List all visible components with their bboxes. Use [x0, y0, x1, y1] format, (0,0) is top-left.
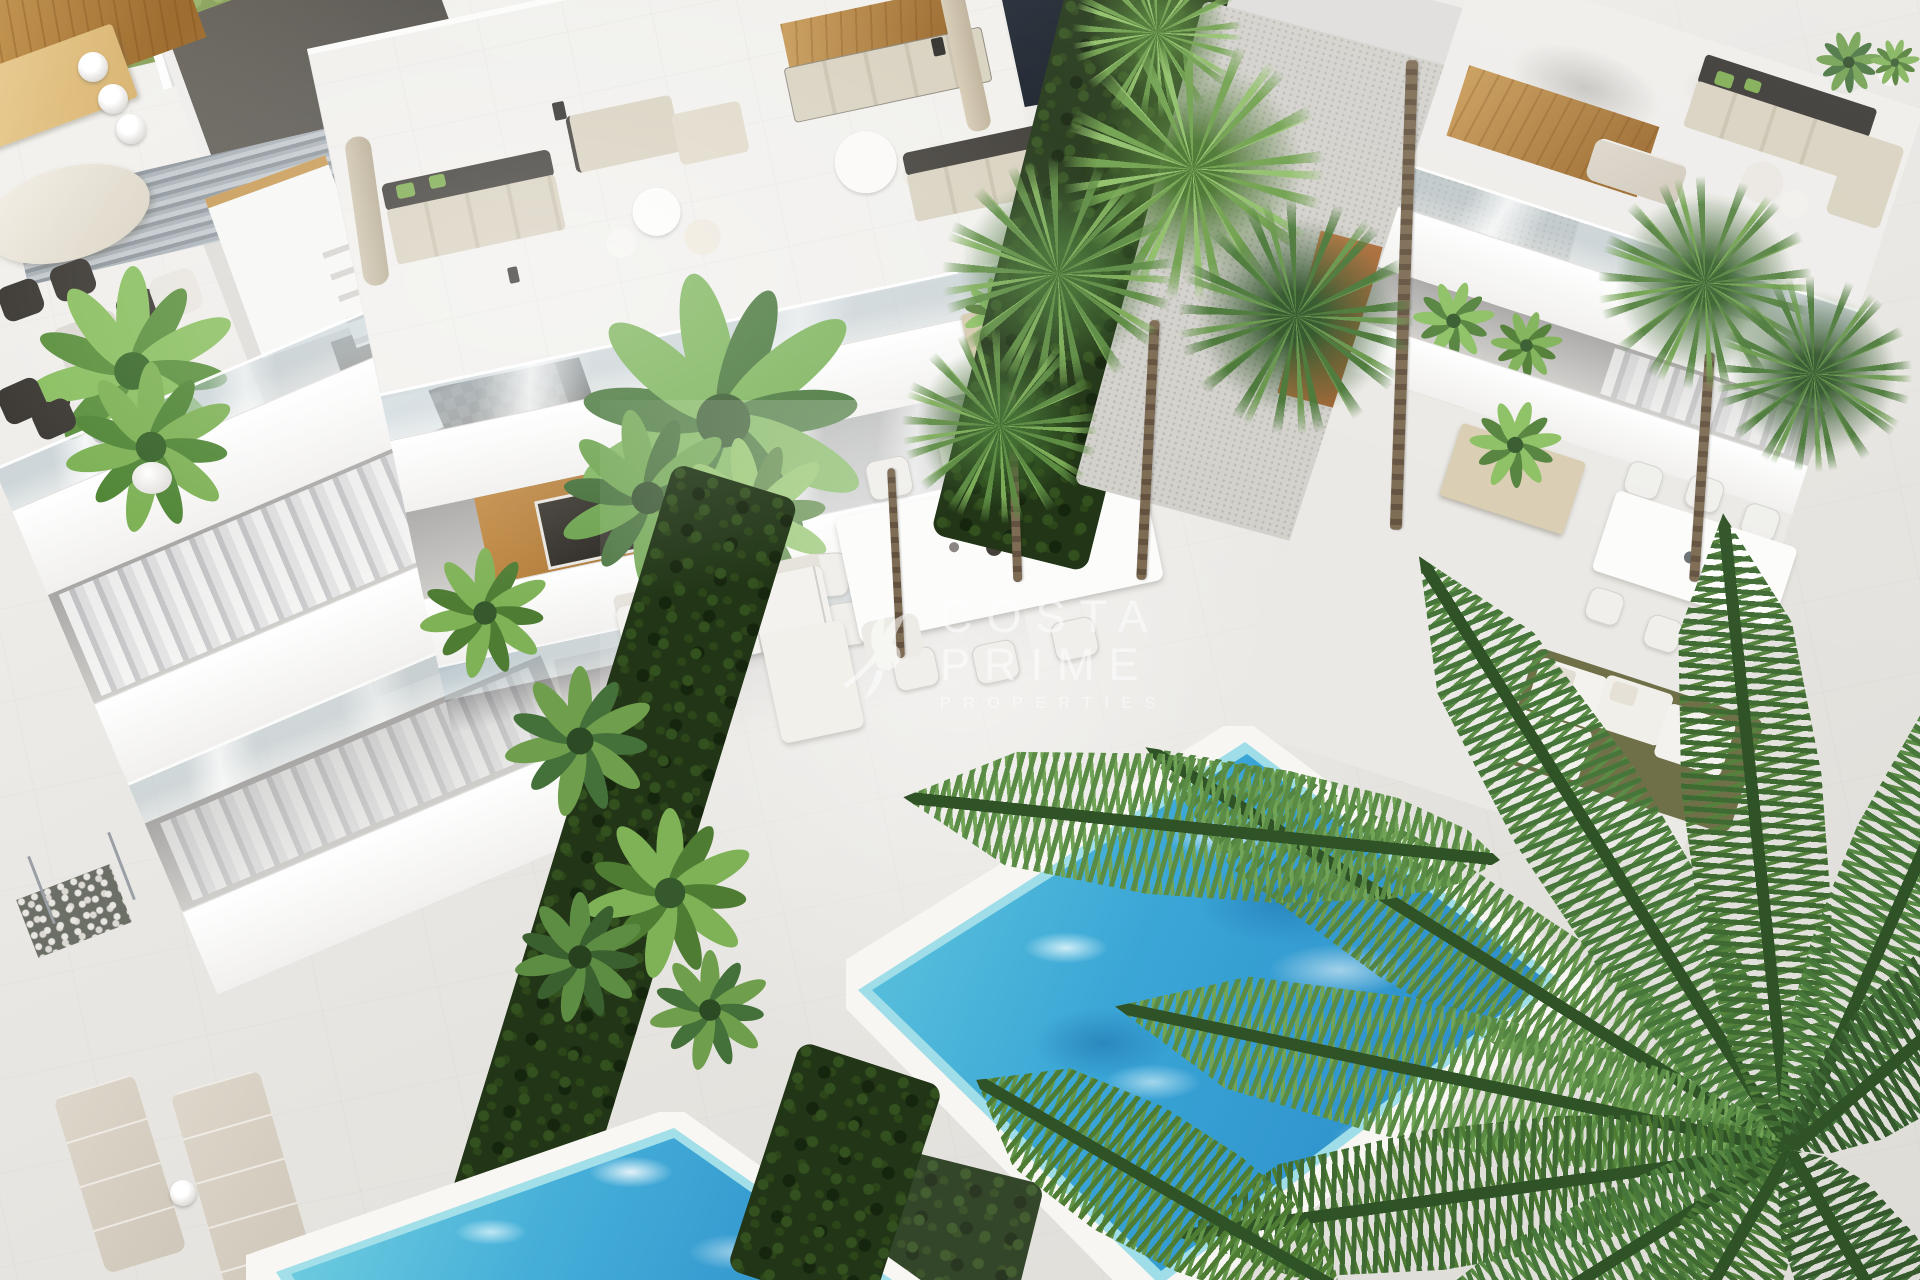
potted-plant [66, 362, 236, 532]
palm-tree [1716, 276, 1912, 472]
watermark-text: COSTA PRIME PROPERTIES [940, 593, 1168, 713]
palm-tree [1178, 198, 1414, 434]
brand-word-bottom: PRIME [940, 641, 1168, 689]
bar-stool [116, 114, 146, 144]
garden-bush [515, 892, 645, 1022]
garden-bush [505, 666, 655, 816]
garden-bush [650, 950, 770, 1070]
bar-stool [98, 84, 128, 114]
aerial-villa-render: COSTA PRIME PROPERTIES [0, 0, 1920, 1280]
hummingbird-icon [821, 593, 931, 713]
bar-stool [78, 52, 108, 82]
garden-bush [420, 548, 550, 678]
watermark: COSTA PRIME PROPERTIES [828, 568, 1288, 738]
plant-pot [132, 462, 172, 494]
palm-tree [902, 328, 1098, 524]
side-table [170, 1180, 196, 1206]
brand-word-top: COSTA [940, 593, 1168, 641]
brand-tagline: PROPERTIES [940, 696, 1168, 713]
